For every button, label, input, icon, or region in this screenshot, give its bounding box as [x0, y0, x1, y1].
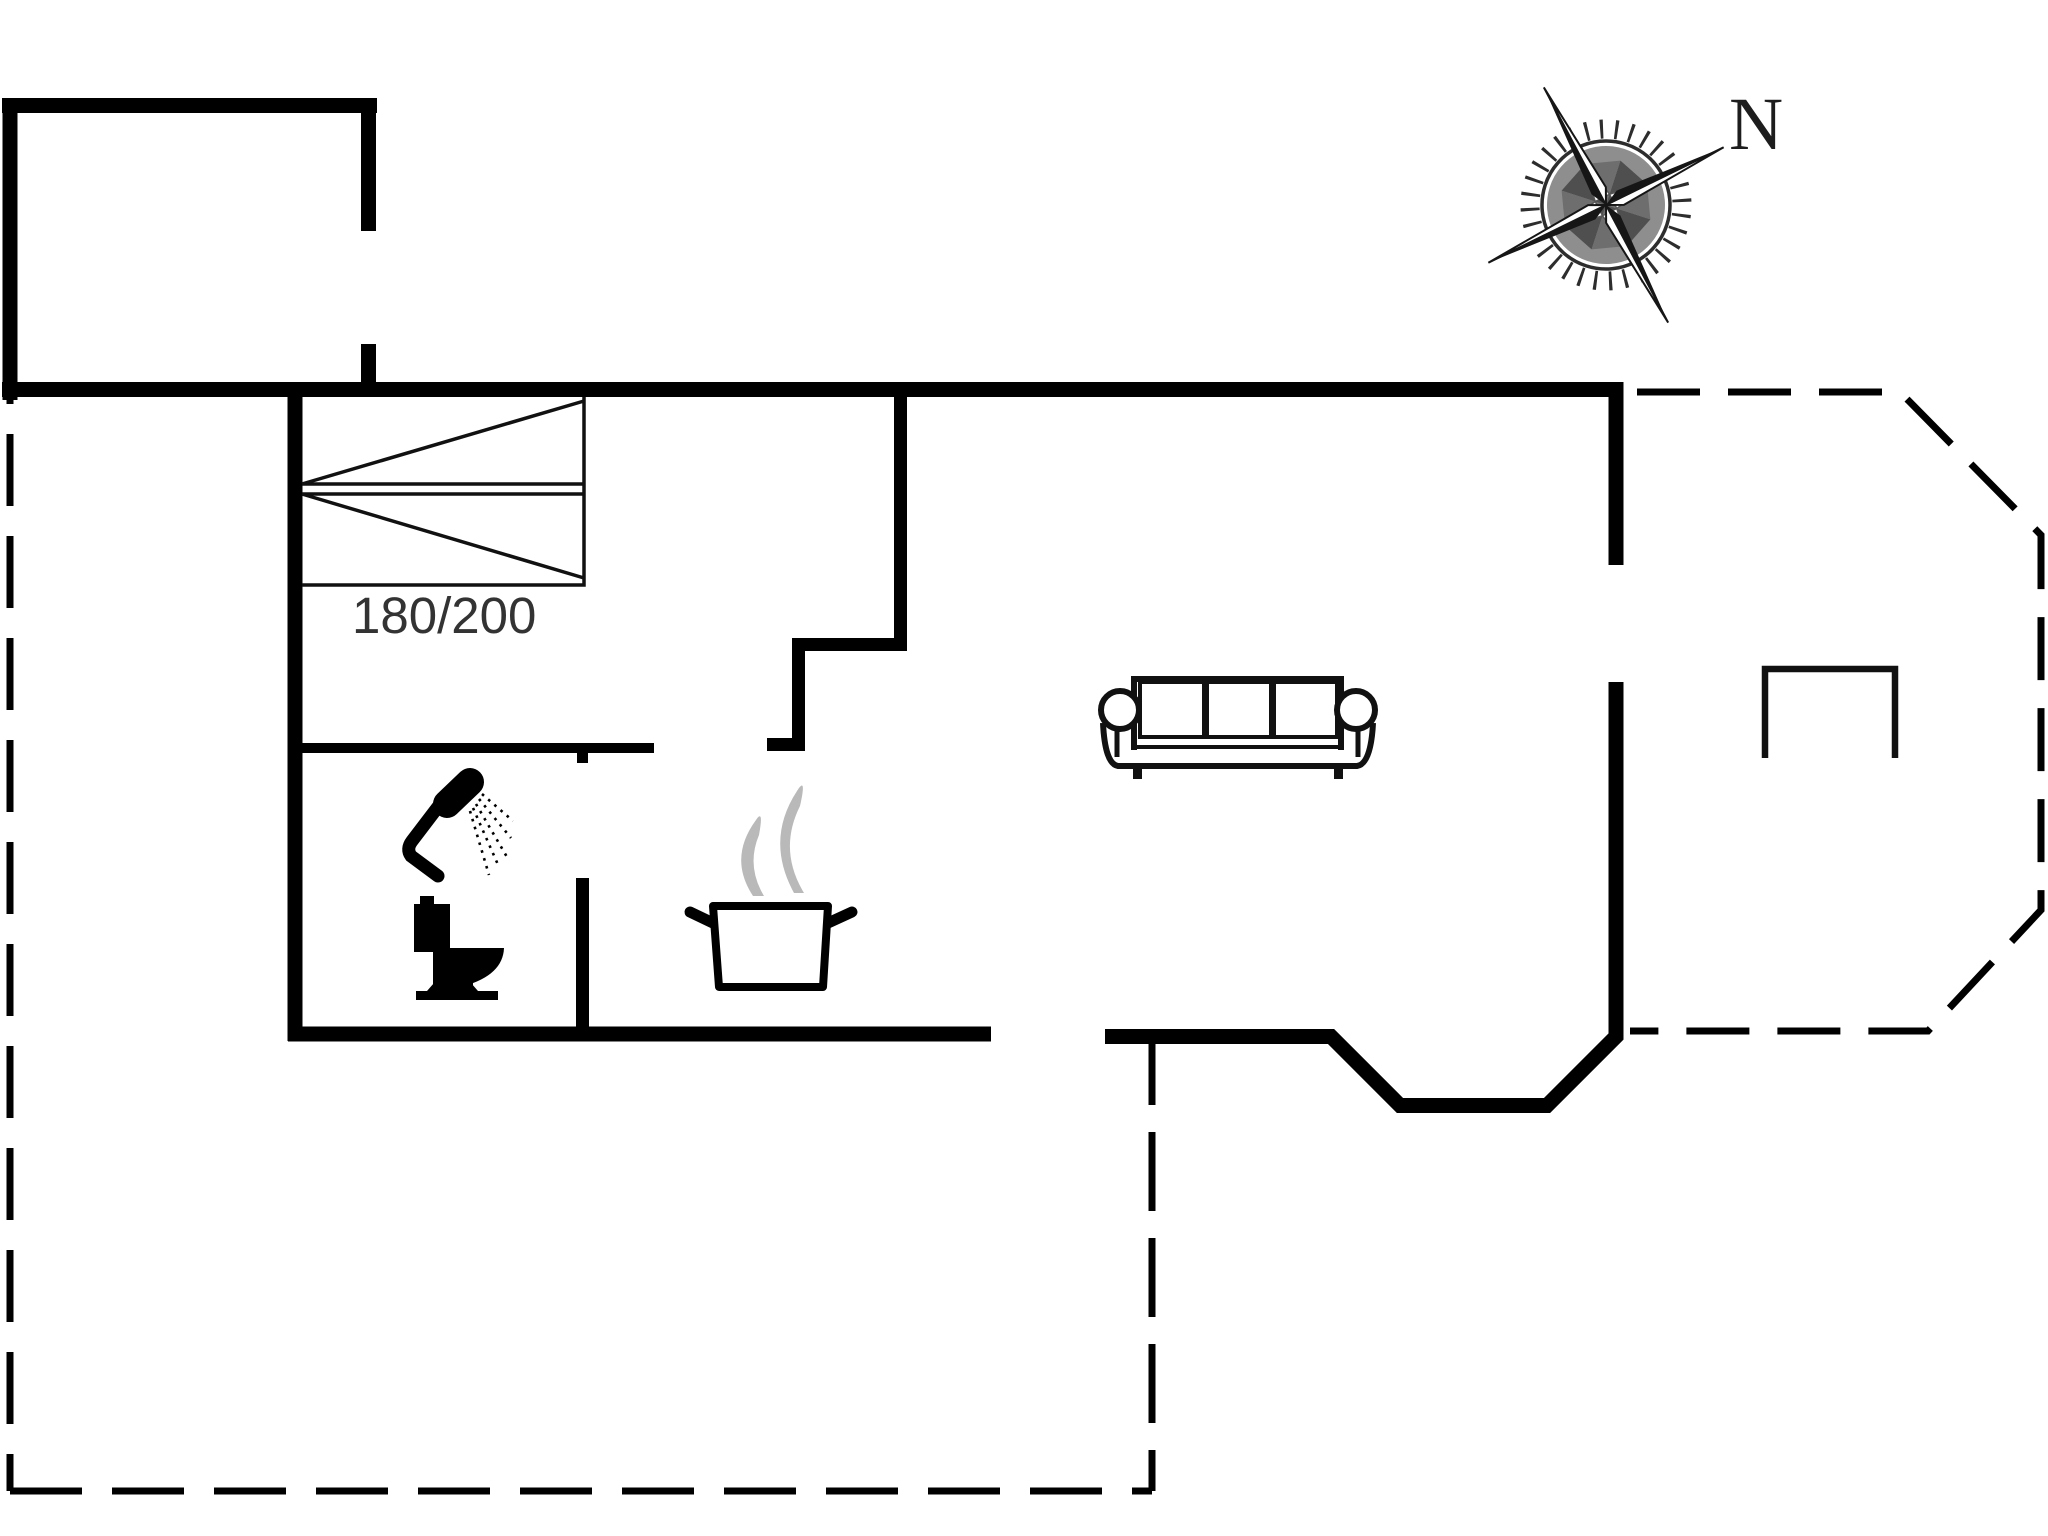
svg-text:180/200: 180/200	[352, 587, 536, 644]
svg-text:N: N	[1729, 83, 1783, 166]
